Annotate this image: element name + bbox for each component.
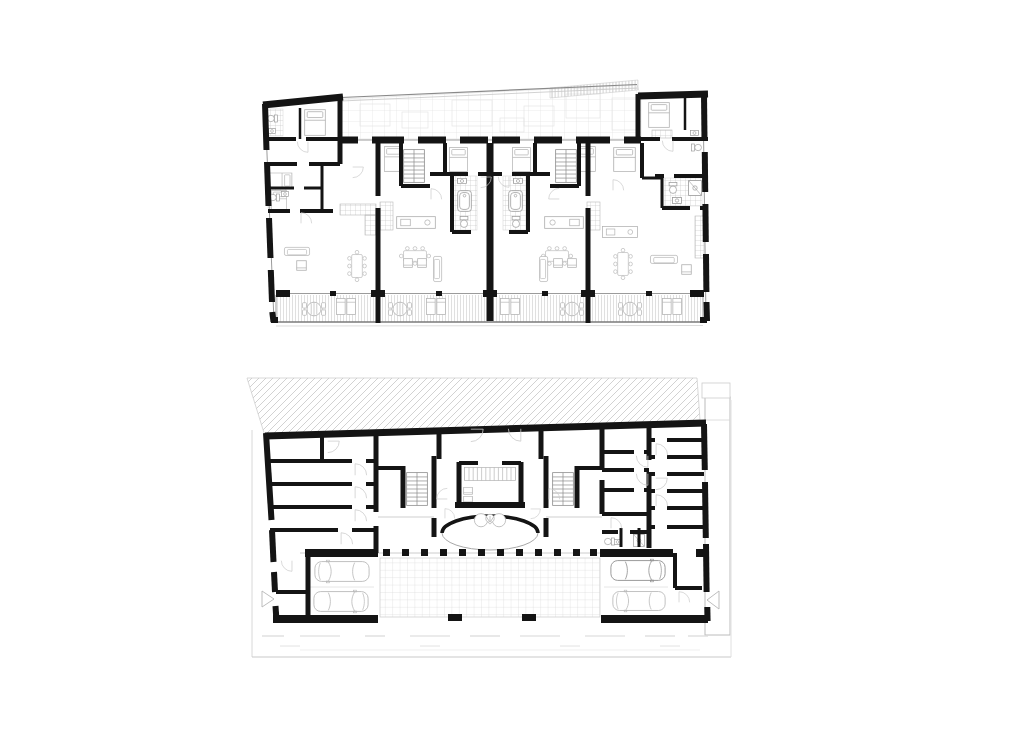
sofa-symbol — [540, 256, 548, 281]
arc-glyph — [656, 478, 668, 490]
sink-glyph — [458, 178, 467, 183]
wc-symbol — [692, 144, 702, 151]
arc-glyph — [531, 509, 541, 519]
sink-glyph — [673, 198, 682, 204]
bed-glyph — [268, 173, 292, 188]
bed-glyph — [385, 147, 402, 172]
wall-block — [276, 290, 290, 297]
area-fill — [652, 130, 672, 138]
wall-segment — [704, 424, 705, 470]
wall-block — [459, 549, 466, 556]
wc-glyph — [512, 217, 520, 228]
area-fill — [277, 295, 377, 322]
sofa-symbol — [434, 256, 442, 281]
wc-symbol — [605, 538, 615, 545]
stair-symbol — [556, 150, 577, 183]
arc-glyph — [662, 141, 673, 152]
chair-symbol — [568, 259, 577, 268]
arc-glyph — [301, 213, 312, 224]
stair-glyph — [553, 473, 574, 506]
tub-glyph — [509, 191, 523, 212]
arc-glyph — [445, 509, 455, 519]
shower-symbol — [689, 181, 702, 196]
arc-glyph — [437, 488, 448, 499]
wall-block — [436, 291, 442, 296]
wall-block — [402, 549, 409, 556]
chair-glyph — [554, 259, 563, 268]
wall-block — [646, 291, 652, 296]
chair-symbol — [418, 259, 427, 268]
region-outline — [262, 591, 274, 607]
wall-block — [478, 549, 485, 556]
car-symbol — [613, 590, 665, 612]
arc-glyph — [636, 456, 648, 468]
bed-glyph — [513, 148, 531, 172]
wall-block — [542, 291, 548, 296]
car-glyph — [611, 559, 665, 582]
arc-glyph — [636, 474, 648, 486]
wall-block — [590, 549, 597, 556]
sink-symbol — [514, 178, 523, 183]
arc-glyph — [679, 592, 690, 603]
bed-symbol — [268, 173, 292, 188]
area-fill — [380, 202, 393, 230]
wall-block — [273, 615, 378, 623]
stair-glyph — [407, 473, 428, 506]
sink-symbol — [673, 198, 682, 204]
sofa-glyph — [540, 256, 548, 281]
bed-symbol — [385, 147, 402, 172]
island-glyph — [545, 217, 584, 229]
tub-symbol — [458, 191, 472, 212]
chair-glyph — [418, 259, 427, 268]
sink-symbol — [281, 191, 288, 196]
arc-symbol — [662, 141, 673, 152]
car-glyph — [315, 560, 369, 583]
car-glyph — [314, 590, 368, 613]
arc-glyph — [431, 189, 442, 200]
bed-glyph — [450, 148, 468, 172]
arc-glyph — [355, 464, 367, 476]
wall-segment — [263, 97, 343, 105]
wc-glyph — [605, 538, 615, 545]
arc-symbol — [549, 188, 560, 199]
wc-symbol — [669, 183, 677, 194]
arc-glyph — [656, 444, 668, 456]
wall-block — [573, 549, 580, 556]
chair-glyph — [682, 265, 692, 275]
arc-symbol — [341, 533, 353, 545]
wall-block — [448, 614, 462, 621]
wall-block — [440, 549, 447, 556]
arc-glyph — [353, 167, 364, 178]
upper-floor-plan — [263, 80, 708, 326]
wall-segment — [704, 94, 705, 140]
wall-block — [601, 615, 708, 623]
area-fill — [702, 383, 730, 398]
wc-symbol — [512, 217, 520, 228]
bed-symbol — [649, 103, 670, 128]
wall-segment — [269, 218, 271, 258]
chair-symbol — [297, 261, 307, 271]
arc-glyph — [549, 188, 560, 199]
arc-glyph — [341, 533, 353, 545]
chair-symbol — [464, 488, 473, 495]
car-symbol — [611, 559, 665, 582]
wall-block — [271, 317, 278, 323]
wall-block — [383, 549, 390, 556]
table8-glyph — [614, 248, 633, 279]
arc-symbol — [656, 444, 668, 456]
wall-block — [371, 290, 385, 297]
wall-block — [581, 290, 595, 297]
wall-block — [483, 290, 497, 297]
island-symbol — [397, 217, 436, 229]
wall-segment — [271, 270, 272, 302]
chair-symbol — [404, 259, 413, 268]
wall-segment — [265, 104, 267, 150]
chair-symbol — [682, 265, 692, 275]
bikes-symbol — [465, 467, 516, 480]
sink-symbol — [458, 178, 467, 183]
wc-glyph — [460, 217, 468, 228]
sofa-glyph — [434, 256, 442, 281]
car-symbol — [315, 560, 369, 583]
arc-symbol — [281, 561, 292, 572]
tub-symbol — [509, 191, 523, 212]
sink-glyph — [268, 128, 275, 133]
arc-symbol — [656, 478, 668, 490]
wall-segment — [272, 530, 274, 562]
car-glyph — [613, 590, 665, 612]
sofa-symbol — [650, 255, 677, 263]
wall-block — [421, 549, 428, 556]
sink-glyph — [514, 178, 523, 183]
arc-symbol — [611, 518, 622, 529]
arc-symbol — [297, 142, 308, 153]
sofa-symbol — [284, 247, 309, 255]
stair-glyph — [556, 150, 577, 183]
chair-glyph — [404, 259, 413, 268]
wall-block — [330, 291, 336, 296]
tub-glyph — [458, 191, 472, 212]
wall-segment — [705, 482, 706, 538]
arc-glyph — [656, 495, 668, 507]
stair-glyph — [404, 150, 425, 183]
island-symbol — [603, 227, 638, 238]
arc-glyph — [355, 510, 367, 522]
chair-glyph — [568, 259, 577, 268]
arc-symbol — [355, 464, 367, 476]
bikes-glyph — [465, 467, 516, 480]
area-fill — [380, 558, 600, 617]
sofa-glyph — [284, 247, 309, 255]
arc-symbol — [437, 488, 448, 499]
wall-block — [554, 549, 561, 556]
wc-glyph — [268, 115, 278, 122]
chair-glyph — [464, 488, 473, 495]
wall-block — [700, 317, 707, 323]
ground-floor-plan — [247, 378, 731, 657]
bed-glyph — [649, 103, 670, 128]
arc-symbol — [636, 474, 648, 486]
arc-symbol — [431, 189, 442, 200]
wall-block — [690, 290, 704, 297]
sofa-glyph — [650, 255, 677, 263]
sink-symbol — [690, 130, 698, 135]
wall-block — [522, 614, 536, 621]
table8-symbol — [348, 250, 367, 281]
arc-symbol — [613, 180, 624, 191]
arc-symbol — [355, 487, 367, 499]
island-glyph — [397, 217, 436, 229]
arc-symbol — [328, 441, 340, 453]
arc-symbol — [301, 213, 312, 224]
arc-glyph — [355, 487, 367, 499]
wall-block — [516, 549, 523, 556]
table8-symbol — [614, 248, 633, 279]
area-fill — [365, 215, 376, 235]
wall-segment — [267, 162, 269, 206]
shower-glyph — [689, 181, 702, 196]
arc-symbol — [636, 456, 648, 468]
chair-glyph — [297, 261, 307, 271]
arc-symbol — [531, 509, 541, 519]
bed-glyph — [305, 110, 326, 136]
wall-block — [305, 549, 378, 557]
arc-glyph — [328, 441, 340, 453]
wall-segment — [274, 572, 275, 592]
sink-symbol — [268, 128, 275, 133]
table8-glyph — [348, 250, 367, 281]
bed-symbol — [614, 148, 636, 172]
car-symbol — [314, 590, 368, 613]
wall-block — [535, 549, 542, 556]
bed-glyph — [614, 148, 636, 172]
arc-symbol — [355, 510, 367, 522]
stair-symbol — [404, 150, 425, 183]
island-glyph — [603, 227, 638, 238]
arc-glyph — [297, 142, 308, 153]
arc-glyph — [611, 518, 622, 529]
island-symbol — [545, 217, 584, 229]
area-fill — [589, 295, 702, 322]
wall-segment — [638, 94, 708, 96]
wc-glyph — [692, 144, 702, 151]
bed-symbol — [450, 148, 468, 172]
area-fill — [705, 397, 730, 635]
sink-glyph — [690, 130, 698, 135]
arc-glyph — [281, 561, 292, 572]
arc-symbol — [353, 167, 364, 178]
wc-glyph — [669, 183, 677, 194]
arc-symbol — [679, 592, 690, 603]
stair-symbol — [553, 473, 574, 506]
wall-block — [696, 549, 706, 557]
wc-symbol — [460, 217, 468, 228]
wall-block — [497, 549, 504, 556]
wc-symbol — [268, 115, 278, 122]
wall-segment — [706, 544, 707, 592]
area-fill — [340, 204, 376, 215]
arc-symbol — [656, 495, 668, 507]
wall-block — [600, 549, 673, 557]
architectural-drawing-sheet — [0, 0, 1024, 732]
sink-glyph — [281, 191, 288, 196]
floor-plan-canvas — [0, 0, 1024, 732]
chair-symbol — [554, 259, 563, 268]
stair-symbol — [407, 473, 428, 506]
drawing-line — [276, 326, 703, 327]
arc-symbol — [445, 509, 455, 519]
bed-symbol — [513, 148, 531, 172]
bed-symbol — [305, 110, 326, 136]
arc-glyph — [613, 180, 624, 191]
